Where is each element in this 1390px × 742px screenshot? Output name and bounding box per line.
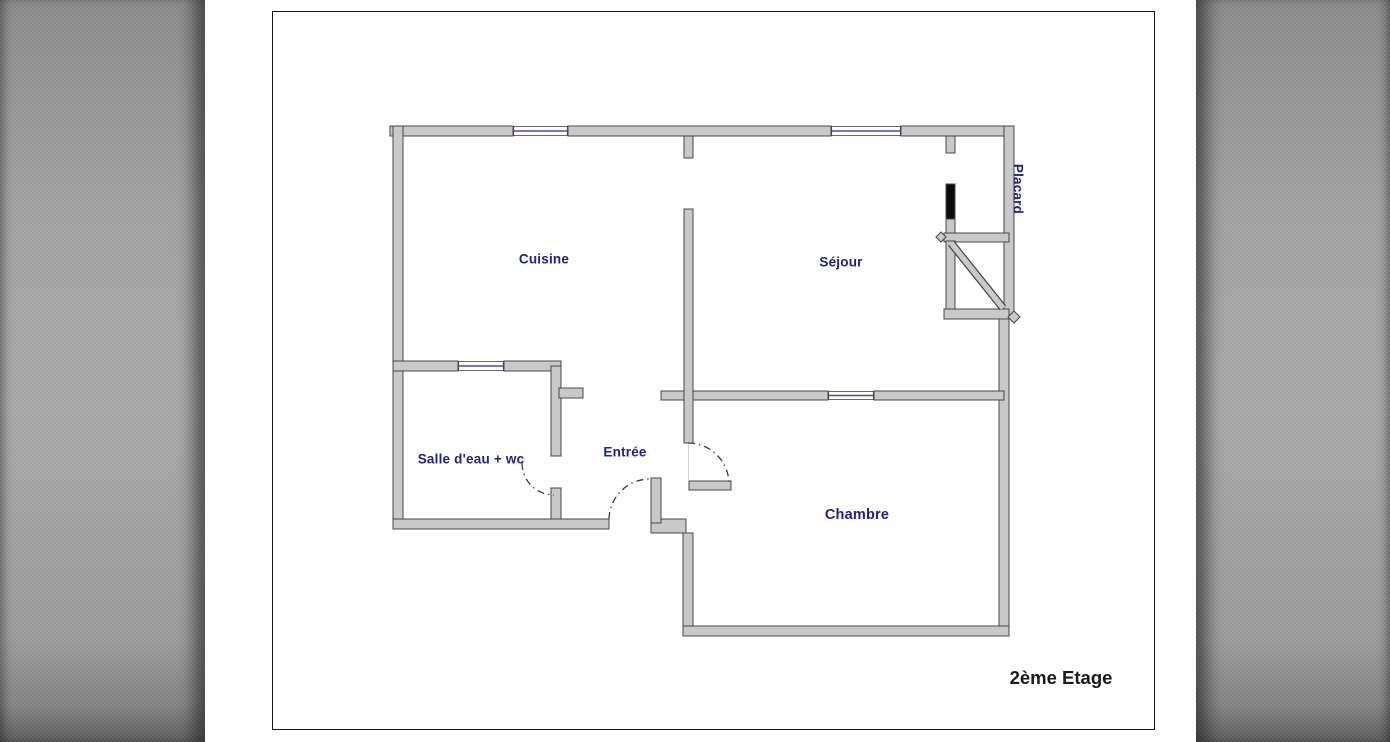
wall-segment <box>393 126 403 529</box>
wall-segment <box>684 136 693 158</box>
wall-segment <box>683 626 1009 636</box>
chambre-door-arc <box>688 443 729 484</box>
wall-segment <box>946 136 955 153</box>
wall-segment <box>393 519 609 529</box>
room-label-entree: Entrée <box>603 445 646 460</box>
room-label-salle-eau: Salle d'eau + wc <box>418 452 525 467</box>
wall-segment <box>568 126 831 136</box>
room-label-cuisine: Cuisine <box>519 252 569 267</box>
left-gutter-panel <box>0 0 205 742</box>
wall-segment <box>901 126 1014 136</box>
salle-eau-door-arc <box>522 463 554 495</box>
wall-segment <box>559 388 583 398</box>
wall-segment <box>390 126 513 136</box>
wall-segment <box>689 481 731 490</box>
wall-segment <box>999 319 1009 636</box>
viewer-canvas: Cuisine Séjour Placard Salle d'eau + wc … <box>0 0 1390 742</box>
wall-segment <box>651 478 661 523</box>
wall-segment <box>551 488 561 519</box>
wall-segment <box>393 361 458 371</box>
document-page: Cuisine Séjour Placard Salle d'eau + wc … <box>272 11 1155 730</box>
wall-segment <box>684 209 693 443</box>
wall-segment <box>946 219 955 233</box>
right-gutter-panel <box>1196 0 1390 742</box>
wall-segment <box>874 391 1004 400</box>
wall-segment <box>944 309 1009 319</box>
entree-door-arc <box>609 479 651 519</box>
wall-segment <box>551 366 561 456</box>
wall-segment <box>1004 126 1014 319</box>
room-label-placard: Placard <box>1011 164 1026 214</box>
floorplan-svg <box>273 12 1154 729</box>
wall-segment <box>683 533 693 636</box>
room-label-chambre: Chambre <box>825 507 889 523</box>
floor-title: 2ème Etage <box>1010 667 1113 689</box>
room-label-sejour: Séjour <box>819 255 862 270</box>
placard-door-leaf <box>946 184 955 221</box>
stairs-diagonal <box>951 243 1003 308</box>
